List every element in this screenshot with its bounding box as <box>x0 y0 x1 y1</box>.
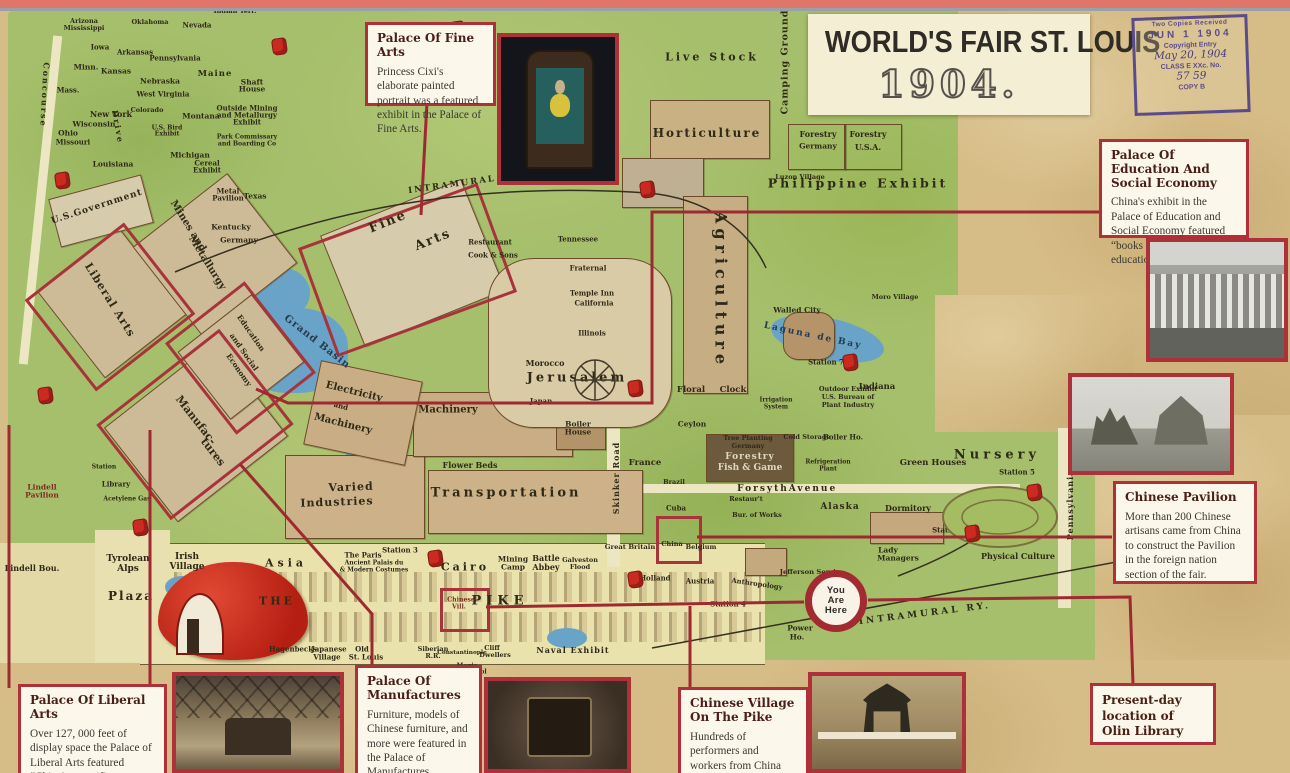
callout-chinese-village-on-the-pike: Chinese Village On The Pike Hundreds of … <box>678 687 809 773</box>
plaza-strip <box>95 530 170 663</box>
map-year: 1904. <box>808 62 1090 106</box>
map-title-card: WORLD'S FAIR ST. LOUIS 1904. <box>808 14 1090 115</box>
callout-title: Palace Of Liberal Arts <box>30 694 155 722</box>
chinese-pavilion-photo <box>1068 373 1234 475</box>
palace-of-liberal-arts-interior-photo <box>172 672 344 773</box>
stamp-handwritten-number: 57 59 <box>1136 68 1246 84</box>
map-building <box>788 124 846 170</box>
callout-palace-of-liberal-arts: Palace Of Liberal Arts Over 127, 000 fee… <box>18 684 167 773</box>
callout-title: Palace Of Education And Social Economy <box>1111 149 1237 190</box>
station-pin-icon <box>627 570 644 589</box>
portrait-face <box>555 80 565 94</box>
portrait-frame <box>526 50 594 169</box>
carved-furniture <box>527 697 592 757</box>
map-building <box>650 100 770 159</box>
stamp-line: COPY B <box>1137 82 1247 93</box>
photo-base <box>1150 328 1284 358</box>
stamp-handwritten-date: May 20, 1904 <box>1135 47 1245 63</box>
callout-olin-library: Present-day location of Olin Library <box>1090 683 1216 745</box>
map-building <box>285 455 425 539</box>
pavilion-roof-silhouette <box>1154 396 1208 445</box>
callout-body: More than 200 Chinese artisans came from… <box>1125 510 1245 582</box>
pavilion-gate-silhouette <box>1091 403 1138 444</box>
chinese-village-highlight <box>440 588 490 632</box>
portrait-figure <box>550 94 569 117</box>
station-pin-icon <box>639 180 656 199</box>
map-title: WORLD'S FAIR ST. LOUIS <box>825 24 1073 60</box>
palace-of-education-photo <box>1146 238 1288 362</box>
top-gray-strip <box>0 8 1290 11</box>
map-building <box>706 434 794 482</box>
callout-body: Princess Cixi's elaborate painted portra… <box>377 65 484 137</box>
callout-body: Hundreds of performers and workers from … <box>690 730 797 773</box>
callout-title: Present-day location of Olin Library <box>1102 693 1204 740</box>
callout-body: Furniture, models of Chinese furniture, … <box>367 708 470 773</box>
callout-title: Palace Of Fine Arts <box>377 32 484 60</box>
map-road <box>620 484 1020 493</box>
station-pin-icon <box>842 353 859 372</box>
callout-palace-of-manufactures: Palace Of Manufactures Furniture, models… <box>355 665 482 773</box>
map-building <box>428 470 643 534</box>
map-water <box>547 628 587 648</box>
callout-chinese-pavilion: Chinese Pavilion More than 200 Chinese a… <box>1113 481 1257 584</box>
callout-title: Chinese Village On The Pike <box>690 697 797 725</box>
callout-title: Chinese Pavilion <box>1125 491 1245 505</box>
top-red-strip <box>0 0 1290 8</box>
map-building <box>783 312 835 360</box>
colonnade <box>1150 274 1284 327</box>
princess-cixi-portrait-photo <box>497 33 619 185</box>
copyright-stamp: Two Copies Received JUN 1 1904 Copyright… <box>1131 14 1250 116</box>
map-building <box>844 124 902 170</box>
station-pin-icon <box>271 37 288 56</box>
station-pin-icon <box>964 524 981 543</box>
palace-of-manufactures-exhibit-photo <box>484 677 631 773</box>
station-pin-icon <box>37 386 54 405</box>
station-pin-icon <box>427 549 444 568</box>
dome-entrance-arch <box>176 593 224 655</box>
chinese-village-gate-photo <box>808 672 966 773</box>
portrait-panel <box>536 68 585 144</box>
roof-trusses <box>176 676 340 718</box>
map-building <box>488 258 672 428</box>
callout-title: Palace Of Manufactures <box>367 675 470 703</box>
you-are-here-marker: You Are Here <box>805 570 867 632</box>
callout-palace-of-education: Palace Of Education And Social Economy C… <box>1099 139 1249 238</box>
map-building <box>745 548 787 576</box>
station-pin-icon <box>1026 483 1043 502</box>
callout-body: Over 127, 000 feet of display space the … <box>30 727 155 773</box>
village-fence <box>818 732 956 739</box>
station-pin-icon <box>627 379 644 398</box>
china-pavilion-highlight <box>656 516 702 564</box>
map-building <box>683 196 748 394</box>
you-are-here-text: Here <box>825 606 847 616</box>
exhibit-structure <box>225 718 291 755</box>
worlds-fair-map-page: Live StockCamping GroundHorticultureFore… <box>0 0 1290 773</box>
map-building <box>870 512 944 544</box>
station-pin-icon <box>132 518 149 537</box>
callout-palace-of-fine-arts: Palace Of Fine Arts Princess Cixi's elab… <box>365 22 496 106</box>
station-pin-icon <box>54 171 71 190</box>
